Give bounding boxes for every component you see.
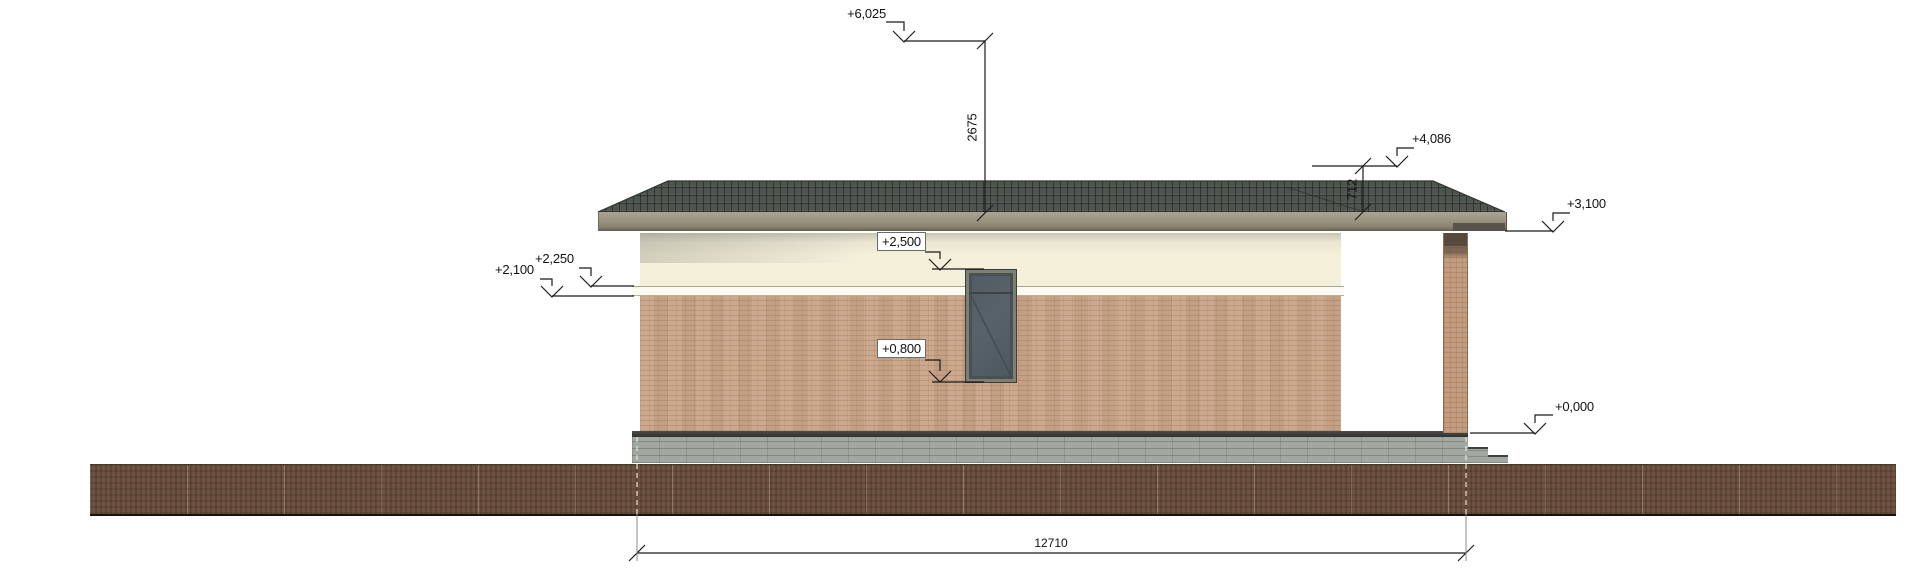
annotation-lines: [0, 0, 1920, 569]
level-label-window-sill: +0,800: [877, 339, 926, 358]
level-label-cornice-top: +2,250: [535, 251, 574, 266]
level-label-zero: +0,000: [1555, 399, 1594, 414]
level-label-cornice-bottom: +2,100: [495, 262, 534, 277]
level-label-eave: +3,100: [1567, 196, 1606, 211]
dim-label-roof-rise: 712: [1345, 175, 1360, 205]
level-label-peak: +6,025: [844, 6, 886, 21]
level-label-roof-right: +4,086: [1412, 131, 1451, 146]
level-label-window-head: +2,500: [877, 232, 926, 251]
dim-label-overall-length: 12710: [1021, 536, 1081, 550]
dim-label-peak-to-eave: 2675: [965, 108, 980, 148]
elevation-drawing-canvas: +6,025 2675 +4,086 712 +3,100 +2,100 +2,…: [0, 0, 1920, 569]
